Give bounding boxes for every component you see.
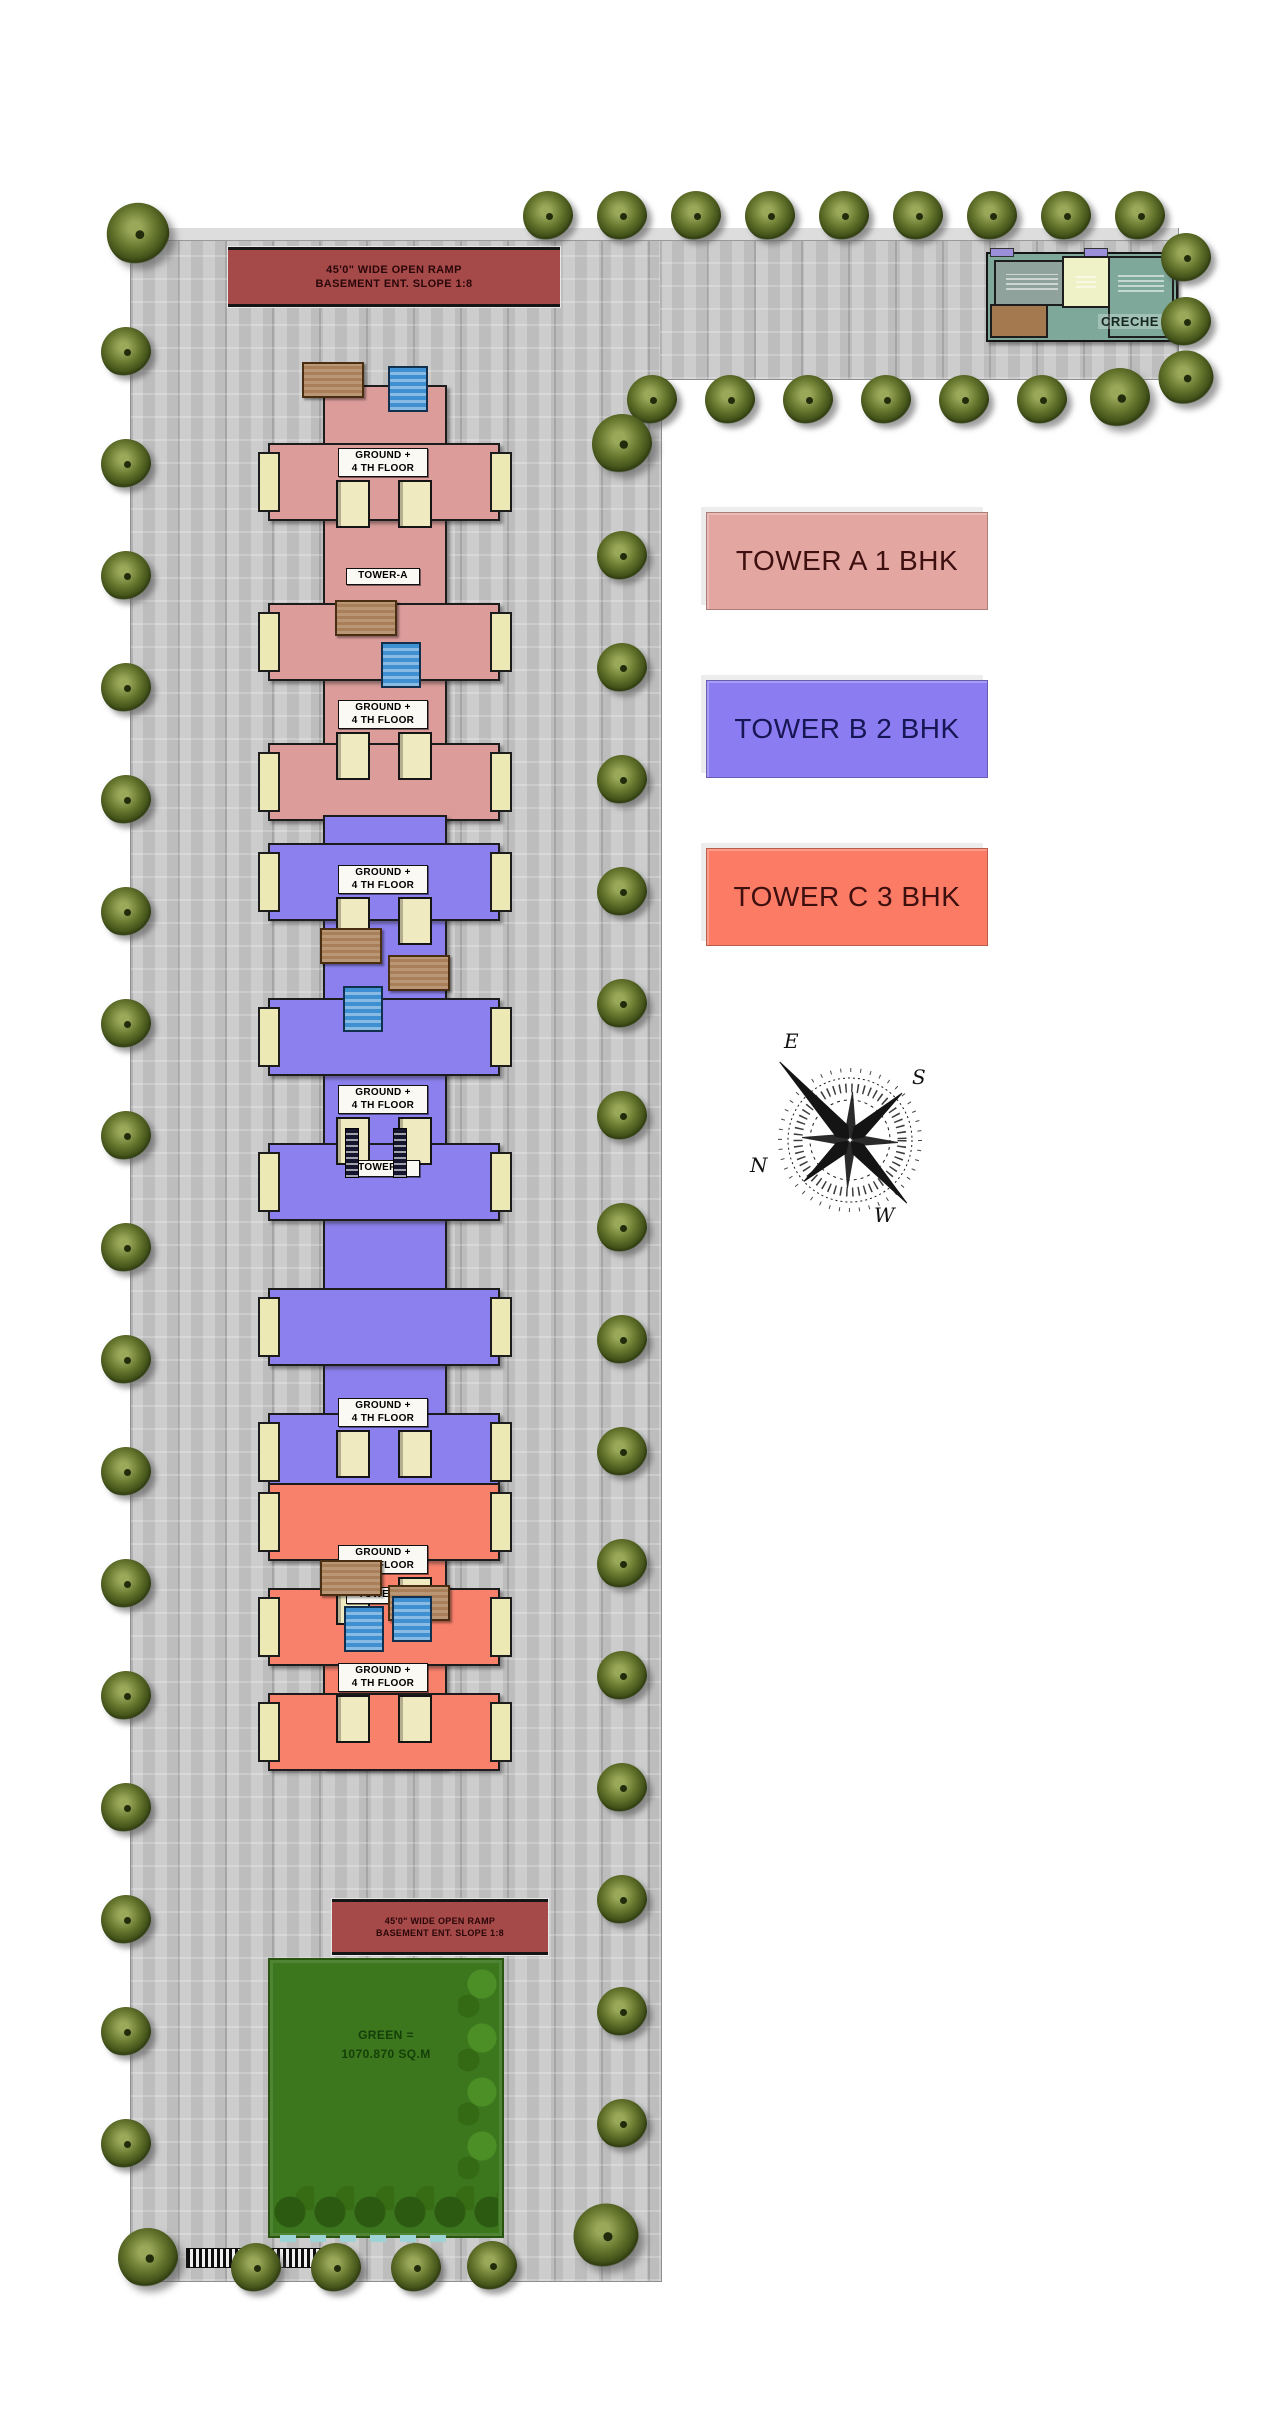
floor-count-label: GROUND + 4 TH FLOOR: [338, 1663, 428, 1692]
stair-room: [336, 1695, 370, 1743]
stair-room: [336, 480, 370, 528]
water-edge-dashes: [280, 2235, 458, 2242]
floor-count-label: GROUND + 4 TH FLOOR: [338, 448, 428, 477]
balcony-block: [258, 452, 280, 512]
lift-shaft: [345, 1128, 359, 1178]
balcony-block: [490, 752, 512, 812]
lift-shaft: [393, 1128, 407, 1178]
stair-room: [398, 1695, 432, 1743]
balcony-block: [258, 752, 280, 812]
balcony-block: [258, 1702, 280, 1762]
legend-tower-c: TOWER C 3 BHK: [706, 848, 988, 946]
creche-room-yellow: [1062, 256, 1110, 308]
balcony-block: [490, 612, 512, 672]
balcony-block: [258, 612, 280, 672]
stair-room: [398, 1430, 432, 1478]
entrance-mat: [320, 928, 382, 964]
entrance-mat: [320, 1560, 382, 1596]
tree-icon: [859, 373, 913, 427]
balcony-block: [490, 1492, 512, 1552]
stair-room: [336, 732, 370, 780]
ramp-banner-bottom: 45'0" WIDE OPEN RAMP BASEMENT ENT. SLOPE…: [332, 1899, 548, 1955]
compass-rose-icon: E S N W: [720, 1000, 980, 1260]
compass-north-label: N: [749, 1153, 769, 1177]
entrance-mat: [388, 955, 450, 991]
balcony-block: [258, 1297, 280, 1357]
tower-wing: [268, 998, 500, 1076]
stair-room: [398, 732, 432, 780]
water-tank: [381, 642, 421, 688]
tower-b-footprint: GROUND + 4 TH FLOORGROUND + 4 TH FLOORGR…: [272, 815, 494, 1495]
ramp-banner-bottom-line2: BASEMENT ENT. SLOPE 1:8: [332, 1928, 548, 1938]
tower-wing: [268, 1143, 500, 1221]
balcony-block: [490, 1422, 512, 1482]
stair-room: [336, 1430, 370, 1478]
balcony-block: [490, 1597, 512, 1657]
legend-tower-b: TOWER B 2 BHK: [706, 680, 988, 778]
stair-room: [398, 480, 432, 528]
entrance-gate-fence: [186, 2248, 350, 2268]
tower-wing: [268, 1693, 500, 1771]
tree-icon: [937, 373, 991, 427]
creche-roof-tick: [990, 248, 1014, 257]
entrance-mat: [302, 362, 364, 398]
compass-east-label: E: [783, 1029, 799, 1053]
balcony-block: [258, 1152, 280, 1212]
green-lawn: GREEN = 1070.870 SQ.M: [268, 1958, 504, 2238]
balcony-block: [258, 1422, 280, 1482]
site-plan: 45'0" WIDE OPEN RAMP BASEMENT ENT. SLOPE…: [0, 0, 1261, 2432]
water-tank: [388, 366, 428, 412]
tree-icon: [703, 373, 757, 427]
ramp-banner-top-line2: BASEMENT ENT. SLOPE 1:8: [228, 278, 560, 290]
shrub-row-bottom: [274, 2186, 498, 2230]
stair-room: [398, 897, 432, 945]
water-tank: [344, 1606, 384, 1652]
room-text-bar: [1076, 274, 1096, 288]
entrance-mat: [335, 600, 397, 636]
balcony-block: [490, 1702, 512, 1762]
ramp-banner-top-line1: 45'0" WIDE OPEN RAMP: [228, 264, 560, 276]
creche-room-brown: [990, 304, 1048, 338]
water-tank: [392, 1596, 432, 1642]
compass-west-label: W: [874, 1203, 896, 1227]
floor-count-label: GROUND + 4 TH FLOOR: [338, 865, 428, 894]
compass-south-label: S: [912, 1065, 926, 1089]
floor-count-label: GROUND + 4 TH FLOOR: [338, 700, 428, 729]
shrub-row-right: [458, 1966, 500, 2182]
room-text-bar: [1118, 274, 1164, 292]
balcony-block: [258, 1007, 280, 1067]
balcony-block: [258, 852, 280, 912]
tower-name-label: TOWER-A: [346, 568, 420, 585]
water-tank: [343, 986, 383, 1032]
balcony-block: [490, 1152, 512, 1212]
balcony-block: [490, 452, 512, 512]
tower-wing: [268, 743, 500, 821]
legend-tower-a: TOWER A 1 BHK: [706, 512, 988, 610]
tower-wing: [268, 1288, 500, 1366]
creche-label: CRECHE: [1098, 314, 1162, 329]
balcony-block: [490, 1297, 512, 1357]
ramp-banner-bottom-line1: 45'0" WIDE OPEN RAMP: [332, 1916, 548, 1926]
creche-building: CRECHE: [986, 252, 1178, 342]
balcony-block: [490, 852, 512, 912]
floor-count-label: GROUND + 4 TH FLOOR: [338, 1398, 428, 1427]
balcony-block: [258, 1492, 280, 1552]
balcony-block: [258, 1597, 280, 1657]
floor-count-label: GROUND + 4 TH FLOOR: [338, 1085, 428, 1114]
boundary-curb: [130, 228, 1178, 241]
tree-icon: [1015, 373, 1069, 427]
ramp-banner-top: 45'0" WIDE OPEN RAMP BASEMENT ENT. SLOPE…: [228, 247, 560, 307]
tree-icon: [781, 373, 835, 427]
room-text-bar: [1006, 274, 1058, 290]
balcony-block: [490, 1007, 512, 1067]
